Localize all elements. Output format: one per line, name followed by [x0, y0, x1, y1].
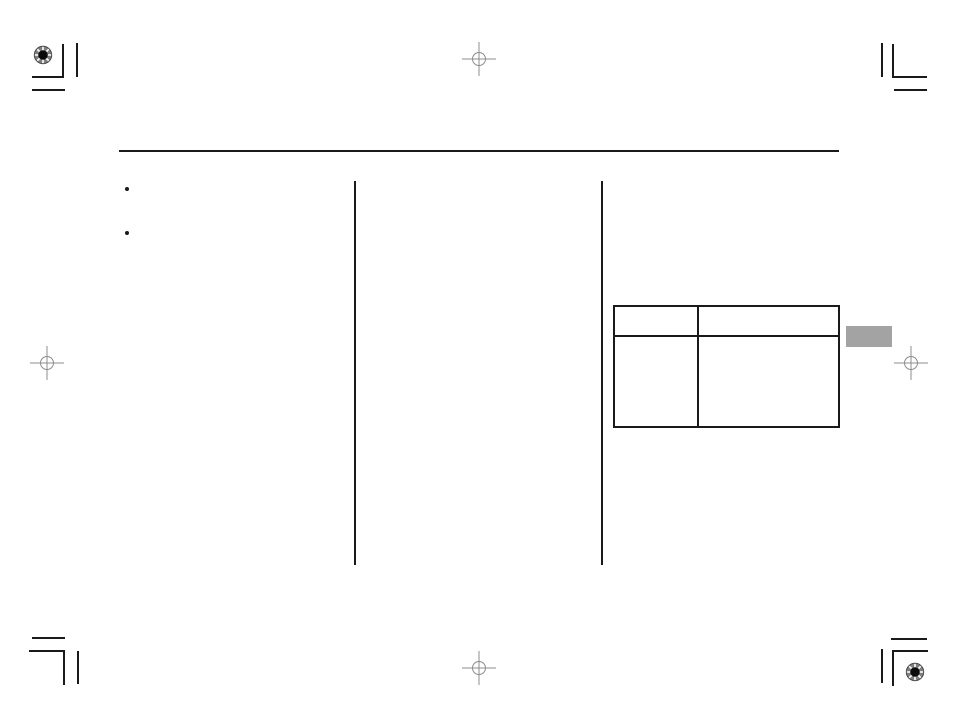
table-cell [614, 336, 698, 427]
crop-mark-line [892, 44, 894, 78]
crop-mark-line [892, 650, 928, 652]
crop-mark-line [77, 651, 79, 684]
column-divider-left [354, 181, 356, 565]
crosshair-registration-icon [894, 346, 928, 380]
crop-mark-line [894, 76, 927, 78]
registration-target-icon [905, 662, 925, 682]
crop-mark-line [29, 650, 65, 652]
section-tab [846, 326, 892, 347]
crop-mark-line [32, 76, 64, 78]
crop-mark-line [892, 650, 894, 686]
bullet-marker [125, 231, 129, 235]
crop-mark-line [63, 650, 65, 685]
crop-mark-line [894, 89, 927, 91]
manual-page [0, 0, 954, 709]
bullet-marker [125, 187, 129, 191]
crop-mark-line [32, 637, 65, 639]
registration-target-icon [33, 45, 53, 65]
table-row [614, 336, 839, 427]
table-cell [698, 336, 839, 427]
crop-mark-line [32, 89, 65, 91]
table-cell [698, 306, 839, 336]
spec-table [613, 305, 840, 428]
table-row [614, 306, 839, 336]
crosshair-registration-icon [462, 651, 496, 685]
crosshair-registration-icon [30, 346, 64, 380]
crop-mark-line [891, 638, 927, 640]
crop-mark-line [62, 44, 64, 78]
header-rule [119, 150, 839, 152]
column-divider-right [601, 181, 603, 565]
table-cell [614, 306, 698, 336]
crop-mark-line [881, 649, 883, 683]
crop-mark-line [881, 43, 883, 77]
crop-mark-line [76, 43, 78, 77]
crosshair-registration-icon [462, 42, 496, 76]
